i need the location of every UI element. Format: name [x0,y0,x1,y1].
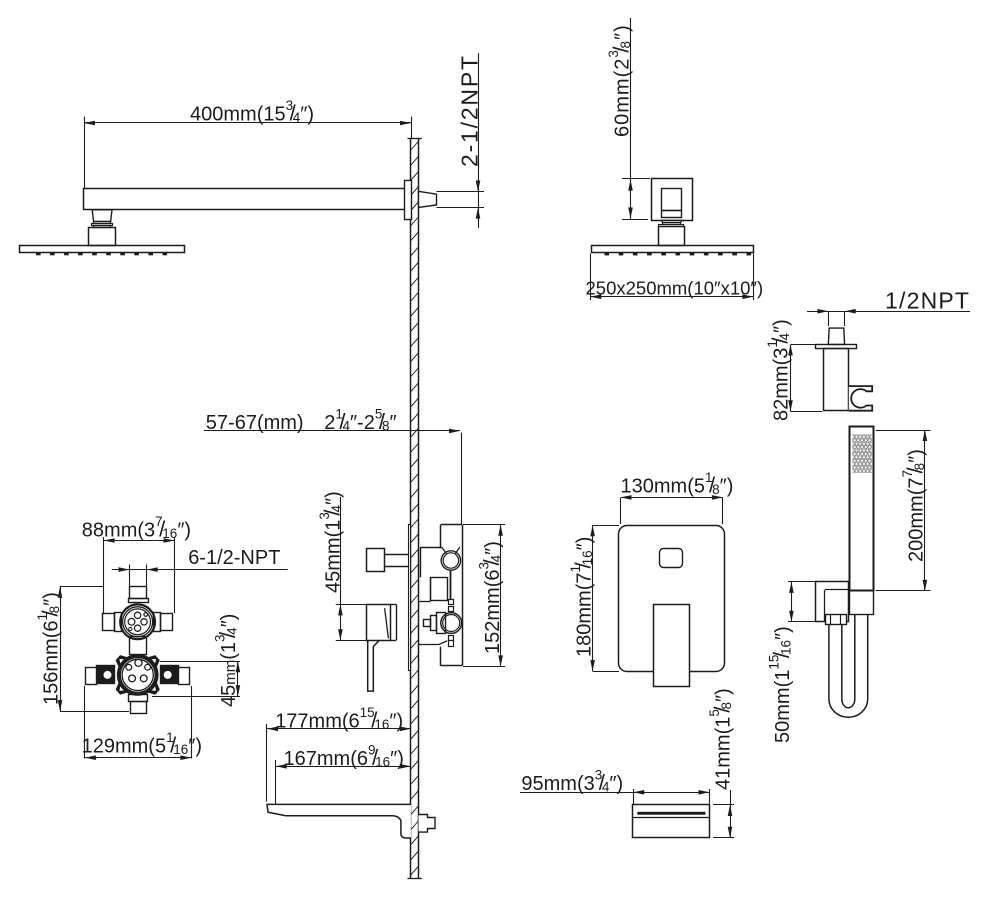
svg-text:250x250mm(10″x10″): 250x250mm(10″x10″) [586,277,764,298]
svg-text:2-1/2NPT: 2-1/2NPT [457,54,483,167]
svg-text:57-67(mm): 57-67(mm) [206,412,304,434]
svg-text:6-1/2-NPT: 6-1/2-NPT [188,547,280,569]
svg-text:1/2NPT: 1/2NPT [885,288,970,314]
